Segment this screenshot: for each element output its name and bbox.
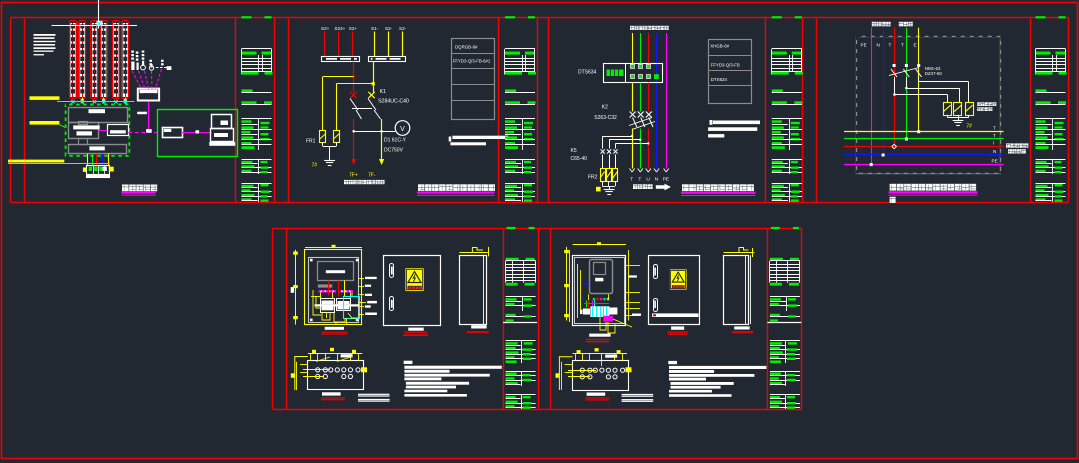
svg-text:NM1-63: NM1-63 <box>925 66 941 71</box>
svg-text:T: T <box>889 43 892 48</box>
svg-text:DQRGB-6#: DQRGB-6# <box>455 44 478 49</box>
svg-text:PE: PE <box>992 159 998 164</box>
svg-text:S284UC-C40: S284UC-C40 <box>378 99 409 105</box>
svg-text:S263-C32: S263-C32 <box>594 115 617 121</box>
svg-text:FR2: FR2 <box>588 174 598 180</box>
svg-text:7#: 7# <box>312 163 318 169</box>
svg-text:K5: K5 <box>571 148 577 154</box>
svg-text:S2-: S2- <box>385 26 393 31</box>
svg-text:FFYD3-Q/3-FB: FFYD3-Q/3-FB <box>711 62 740 67</box>
svg-text:7F-: 7F- <box>368 173 376 179</box>
svg-text:K2: K2 <box>602 104 608 110</box>
svg-text:K1: K1 <box>380 89 386 95</box>
svg-text:FR1: FR1 <box>306 139 316 145</box>
svg-text:S2-: S2- <box>399 26 407 31</box>
svg-text:XHGB-6#: XHGB-6# <box>710 44 729 49</box>
svg-text:7F+: 7F+ <box>349 173 358 179</box>
svg-text:C65-40: C65-40 <box>571 156 588 162</box>
svg-text:N: N <box>993 149 996 154</box>
svg-text:T: T <box>993 126 996 131</box>
svg-text:S2+: S2+ <box>321 26 330 31</box>
svg-text:N: N <box>877 43 880 48</box>
svg-text:T: T <box>993 133 996 138</box>
svg-text:7#: 7# <box>966 124 972 130</box>
svg-text:N: N <box>655 177 659 183</box>
svg-text:DZ47-60: DZ47-60 <box>925 71 943 76</box>
svg-text:DTS634: DTS634 <box>711 77 728 82</box>
svg-text:DTS634: DTS634 <box>578 70 597 76</box>
svg-text:FFYD3-Q/3-FB-6#1: FFYD3-Q/3-FB-6#1 <box>453 59 491 64</box>
svg-text:E: E <box>914 43 917 48</box>
svg-text:T: T <box>630 177 633 183</box>
svg-text:DC750V: DC750V <box>384 148 404 154</box>
svg-text:D1 61C-Y: D1 61C-Y <box>384 138 407 144</box>
svg-text:U: U <box>646 177 650 183</box>
svg-text:I: I <box>993 141 994 146</box>
svg-text:S24+: S24+ <box>335 26 346 31</box>
svg-text:PE: PE <box>861 43 867 48</box>
svg-text:T: T <box>901 43 904 48</box>
svg-text:V: V <box>400 126 405 133</box>
svg-text:S1-: S1- <box>371 26 379 31</box>
svg-text:PE: PE <box>663 177 669 183</box>
svg-text:T: T <box>638 177 641 183</box>
svg-text:S2+: S2+ <box>349 26 358 31</box>
